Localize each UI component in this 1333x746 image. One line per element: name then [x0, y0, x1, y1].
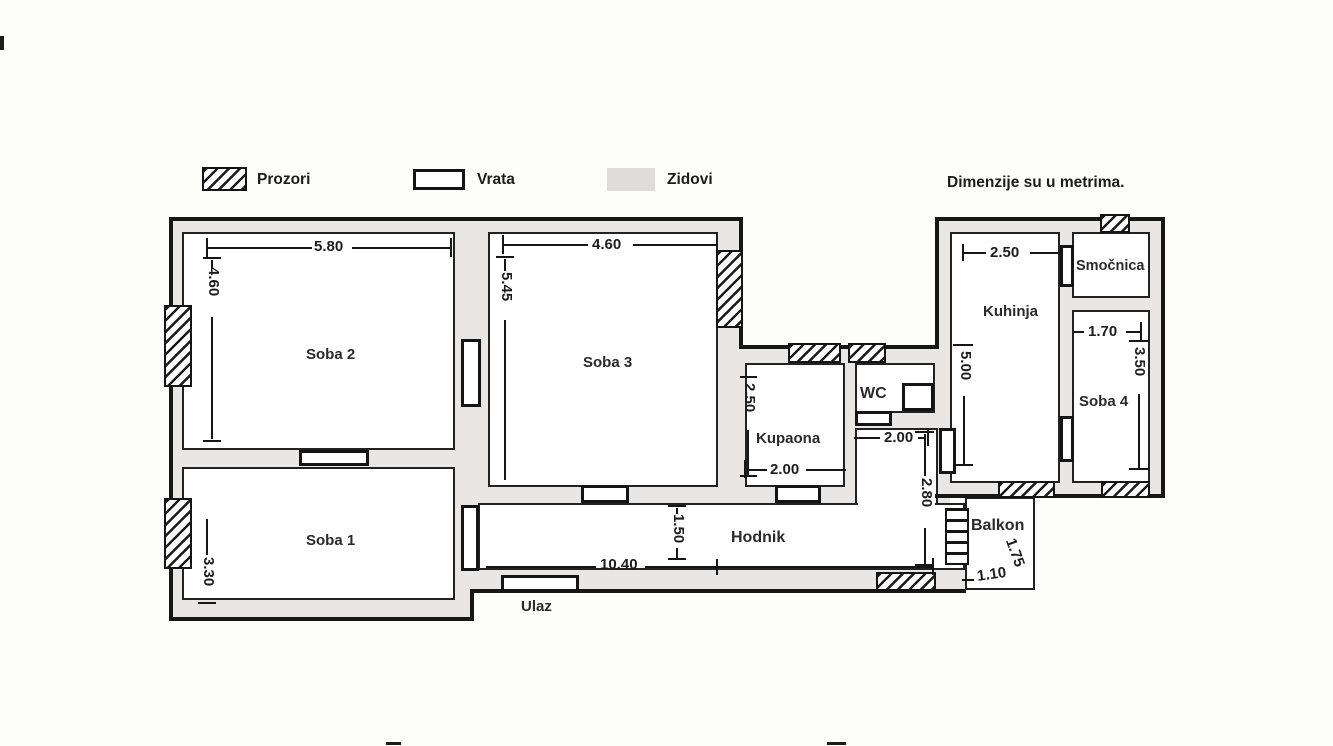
dim-tick [496, 256, 514, 258]
legend-window-label: Prozori [257, 171, 310, 189]
room-hodnik [478, 503, 965, 570]
label-wc: WC [860, 385, 887, 403]
window-smocnica [1100, 214, 1130, 233]
door-soba2-soba3 [461, 339, 481, 407]
dim-tick [198, 602, 216, 604]
door-soba1-hodnik [461, 505, 479, 571]
dim-line [924, 528, 926, 565]
dim-tick [744, 460, 746, 478]
dim-tick [716, 559, 718, 575]
dim-line [806, 469, 846, 471]
window-soba1 [164, 498, 192, 569]
floor-plan-scan: Prozori Vrata Zidovi Dimenzije su u metr… [0, 0, 1333, 746]
label-soba2: Soba 2 [306, 346, 355, 363]
dim-line [1138, 394, 1140, 470]
label-hodnik: Hodnik [731, 529, 785, 547]
dim-tick [668, 558, 686, 560]
exterior-wall-line-top [169, 217, 743, 221]
dim-soba4-height: 3.50 [1131, 347, 1148, 376]
balcony-door [945, 508, 969, 565]
dim-tick [932, 558, 934, 575]
dim-kupaona-height: 2.50 [741, 383, 758, 412]
dim-line [211, 317, 213, 439]
scan-artifact [827, 742, 846, 745]
window-wc [848, 343, 886, 363]
dim-line [352, 247, 452, 249]
dim-tick [740, 475, 757, 477]
dim-tick [953, 344, 973, 346]
window-balkon [998, 481, 1055, 498]
label-soba3: Soba 3 [583, 354, 632, 371]
dim-tick [740, 376, 757, 378]
exterior-wall-line-soba1-bottom [169, 617, 474, 621]
label-soba4: Soba 4 [1079, 393, 1128, 410]
room-soba2 [182, 232, 455, 450]
exterior-wall-line-right [1161, 217, 1165, 498]
dim-tick [450, 238, 452, 257]
dim-line [1030, 252, 1060, 254]
dim-tick [668, 505, 686, 507]
exterior-wall-line-kitchen-left [935, 217, 939, 349]
dim-tick [203, 257, 221, 259]
dim-line [504, 259, 506, 271]
dim-tick [203, 440, 221, 442]
window-soba2 [164, 305, 192, 387]
dim-soba2-width: 5.80 [314, 238, 343, 255]
wc-fixture [902, 383, 934, 411]
dim-line [633, 244, 718, 246]
window-kupaona [788, 343, 841, 363]
dim-soba3-height: 5.45 [498, 272, 515, 301]
exterior-wall-line-step [470, 593, 474, 619]
dim-tick [915, 431, 934, 433]
door-soba3-hodnik [581, 485, 629, 503]
dim-tick [1129, 340, 1148, 342]
dim-tick [206, 238, 208, 257]
dim-kuhinja-height: 5.00 [957, 351, 974, 380]
dim-line [963, 396, 965, 465]
dim-soba1-height: 3.30 [200, 557, 217, 586]
dim-tick [1140, 322, 1142, 340]
window-hodnik [876, 572, 936, 591]
label-soba1: Soba 1 [306, 532, 355, 549]
window-soba4 [1101, 481, 1150, 498]
exterior-wall-line-kitchen-top [935, 217, 1165, 221]
dim-line [747, 469, 767, 471]
door-soba2-soba1 [299, 450, 369, 466]
dim-soba3-width: 4.60 [592, 236, 621, 253]
dim-line [964, 252, 986, 254]
legend-door-swatch [413, 169, 465, 190]
entrance-door [501, 575, 579, 592]
dim-kupaona-width: 2.00 [770, 461, 799, 478]
door-kuhinja-soba4 [1060, 416, 1074, 462]
dim-line [962, 579, 974, 581]
dim-line [207, 247, 312, 249]
units-note: Dimenzije su u metrima. [947, 174, 1124, 192]
legend-wall-label: Zidovi [667, 171, 713, 189]
scan-artifact [386, 742, 401, 745]
dim-tick [1129, 468, 1148, 470]
dim-tick [502, 235, 504, 254]
label-smocnica: Smočnica [1076, 258, 1145, 274]
dim-soba2-height: 4.60 [205, 267, 222, 296]
door-hodnik-kuhinja [939, 428, 956, 474]
dim-line [486, 566, 596, 568]
label-kupaona: Kupaona [756, 430, 820, 447]
scan-artifact [0, 36, 4, 50]
dim-tick [953, 464, 973, 466]
dim-hodnik-length: 10.40 [600, 556, 638, 573]
window-soba3 [716, 250, 743, 328]
dim-soba4-width: 1.70 [1088, 323, 1117, 340]
door-kupaona-hodnik [775, 485, 821, 503]
dim-kuhinja-width: 2.50 [990, 244, 1019, 261]
label-ulaz: Ulaz [521, 598, 552, 615]
door-wc-hodnik [855, 411, 892, 426]
dim-hodnik-width: 1.50 [670, 514, 687, 543]
legend-window-swatch [202, 167, 247, 191]
label-kuhinja: Kuhinja [983, 303, 1038, 320]
dim-line [645, 566, 934, 568]
dim-line [924, 434, 926, 476]
legend-door-label: Vrata [477, 171, 515, 189]
door-kuhinja-smocnica [1060, 245, 1074, 287]
legend-wall-swatch [607, 168, 655, 191]
dim-line [503, 244, 588, 246]
dim-hodnik-side: 2.80 [918, 478, 935, 507]
dim-wc-width: 2.00 [884, 429, 913, 446]
dim-line [1126, 331, 1140, 333]
dim-line [206, 519, 208, 555]
dim-line [854, 437, 880, 439]
dim-line [1074, 331, 1084, 333]
label-balkon: Balkon [971, 517, 1024, 535]
dim-line [504, 320, 506, 480]
